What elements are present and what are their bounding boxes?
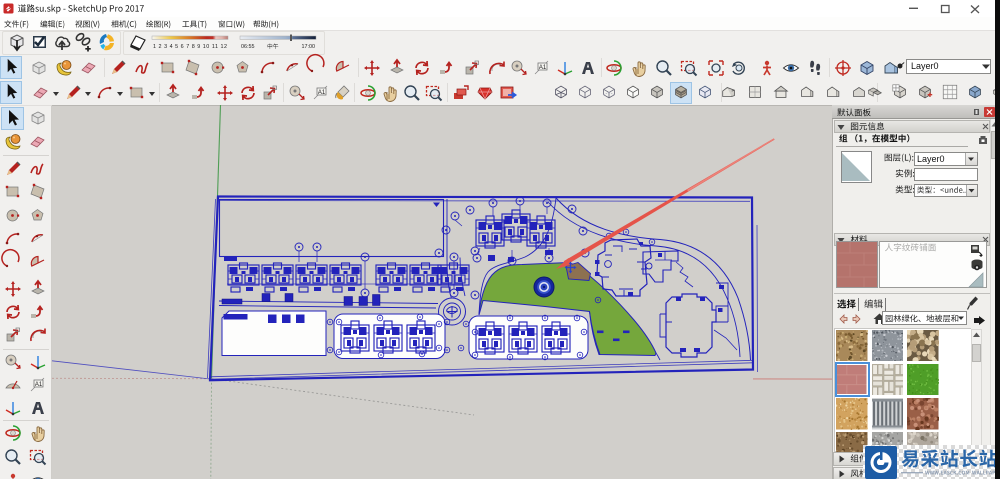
svg-text:A1: A1 [318, 89, 326, 95]
svg-text:17:00: 17:00 [302, 44, 316, 50]
svg-text:06:55: 06:55 [241, 44, 255, 50]
svg-text:1 2 3 4 5 6 7 8 9 10 11 12: 1 2 3 4 5 6 7 8 9 10 11 12 [153, 44, 227, 50]
svg-text:A1: A1 [34, 382, 42, 388]
svg-text:A1: A1 [539, 64, 547, 70]
